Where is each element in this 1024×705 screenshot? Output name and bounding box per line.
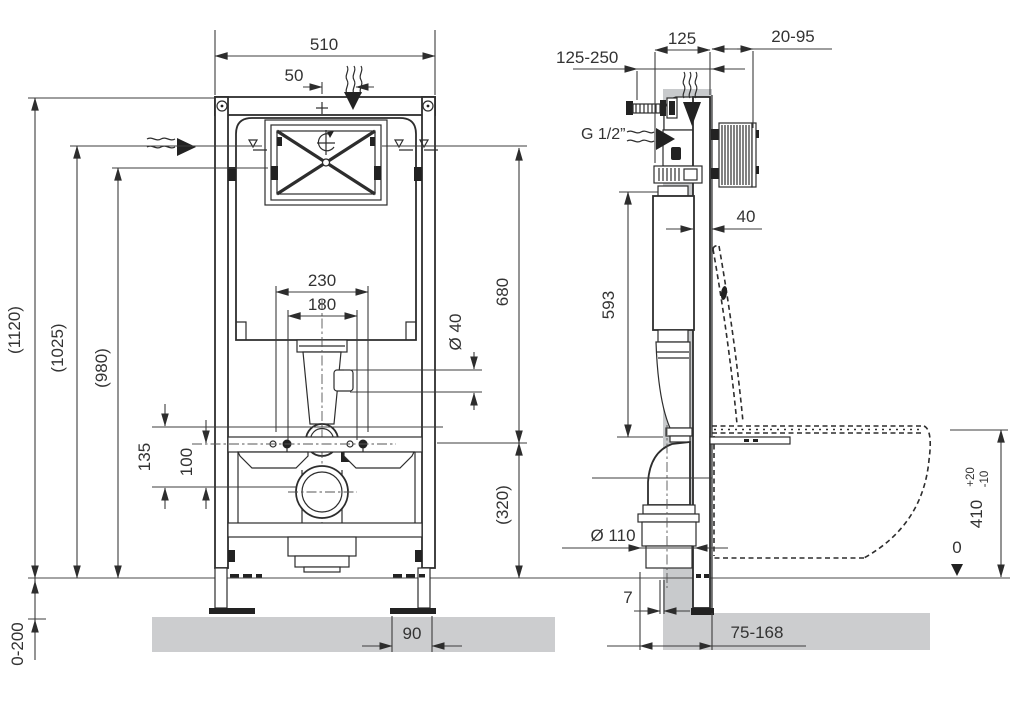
rail-clip bbox=[414, 167, 422, 181]
frame-top-bar bbox=[215, 97, 435, 115]
dim-pipe-dia: Ø 40 bbox=[446, 314, 465, 351]
support-bracket bbox=[344, 452, 414, 468]
dim-height-320: (320) bbox=[493, 485, 512, 525]
dim-tol-plus: +20 bbox=[965, 467, 977, 487]
floor-level-dashes bbox=[230, 574, 425, 578]
support-bracket bbox=[238, 452, 308, 468]
frame-right-rail bbox=[422, 97, 435, 568]
drawing-canvas: 510 50 (1120) (1025) (980) 0-200 230 180… bbox=[0, 0, 1024, 705]
frame-left-leg bbox=[215, 568, 227, 608]
side-view bbox=[592, 72, 930, 615]
fill-valve bbox=[654, 166, 702, 183]
frame-foot bbox=[691, 608, 714, 615]
toilet-bowl-outline bbox=[710, 246, 930, 558]
dim-finish-range: 20-95 bbox=[771, 27, 814, 46]
dim-gap-40: 40 bbox=[737, 207, 756, 226]
side-dimensions: 125-250 125 20-95 G 1/2” 40 593 Ø 110 41… bbox=[556, 27, 1008, 650]
flush-actuator-unit bbox=[711, 123, 759, 187]
floor-slab-front bbox=[152, 617, 555, 652]
dim-anchor-range: 125-250 bbox=[556, 48, 618, 67]
left-foot-plate bbox=[209, 608, 255, 614]
dim-depth-125: 125 bbox=[668, 29, 696, 48]
dim-height-680: 680 bbox=[493, 278, 512, 306]
water-flow-icon-inlet bbox=[147, 138, 196, 156]
dim-drain-dia: Ø 110 bbox=[590, 526, 635, 545]
dim-height-1025: (1025) bbox=[48, 323, 67, 372]
installation-drawing: 510 50 (1120) (1025) (980) 0-200 230 180… bbox=[0, 0, 1024, 705]
right-foot-plate bbox=[390, 608, 436, 614]
dim-drain-range: 75-168 bbox=[731, 623, 784, 642]
rail-clip bbox=[415, 550, 422, 562]
label-floor-zero: 0 bbox=[952, 538, 961, 557]
dim-stud-180: 180 bbox=[308, 295, 336, 314]
lower-rail bbox=[228, 523, 422, 537]
dim-height-100: 100 bbox=[177, 448, 196, 476]
drain-box bbox=[288, 537, 356, 572]
dim-foot-90: 90 bbox=[403, 624, 422, 643]
dim-offset-50: 50 bbox=[285, 66, 304, 85]
label-inlet-thread: G 1/2” bbox=[581, 126, 625, 143]
mounting-stud bbox=[710, 437, 790, 444]
dim-height-1120: (1120) bbox=[5, 306, 24, 354]
dim-offset-7: 7 bbox=[623, 588, 632, 607]
bowl-inlet bbox=[666, 428, 692, 436]
rail-clip bbox=[228, 550, 235, 562]
dim-floor-adjust: 0-200 bbox=[8, 622, 27, 665]
rail-clip bbox=[228, 167, 236, 181]
front-view bbox=[147, 66, 438, 614]
drain-elbow bbox=[638, 442, 699, 568]
dim-height-980: (980) bbox=[92, 348, 111, 388]
dim-tol-minus: -10 bbox=[979, 471, 991, 488]
zero-arrow-icon bbox=[951, 564, 963, 576]
dim-seat-height: 410 bbox=[967, 500, 986, 528]
dim-height-135: 135 bbox=[135, 443, 154, 471]
anchor-bolt-icon bbox=[626, 98, 677, 118]
cross-bar bbox=[228, 437, 422, 452]
dim-height-593: 593 bbox=[599, 291, 618, 319]
cistern-side bbox=[653, 186, 694, 428]
dim-stud-230: 230 bbox=[308, 271, 336, 290]
dim-width-510: 510 bbox=[310, 35, 338, 54]
